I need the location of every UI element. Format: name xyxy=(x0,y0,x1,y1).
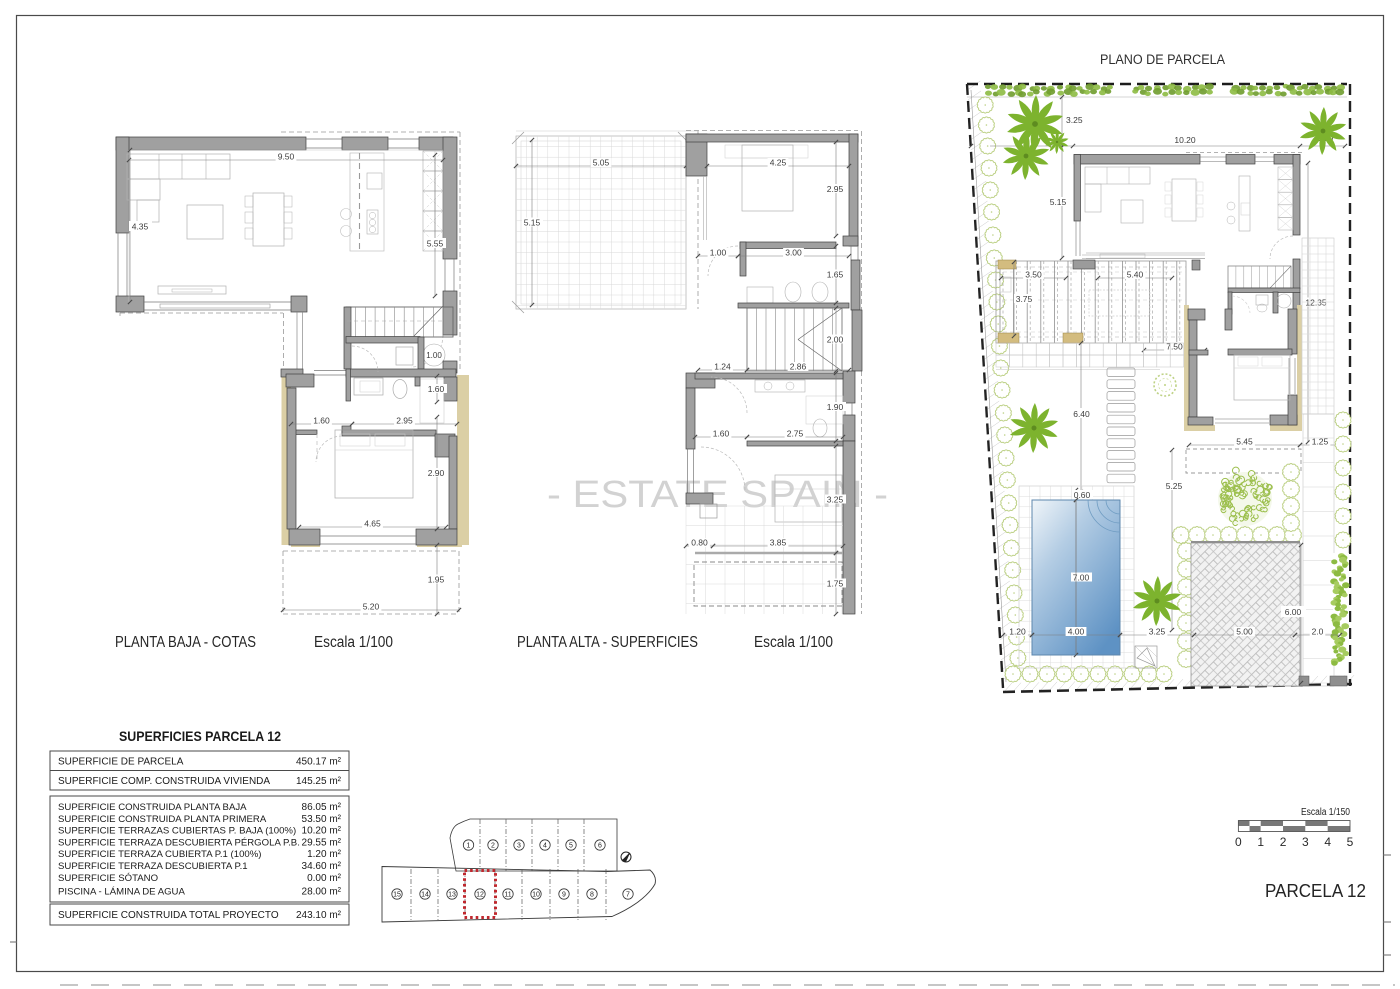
svg-text:PISCINA - LÁMINA DE AGUA: PISCINA - LÁMINA DE AGUA xyxy=(58,887,185,898)
svg-text:2.0: 2.0 xyxy=(1312,627,1324,637)
svg-text:3.00: 3.00 xyxy=(785,248,802,258)
svg-text:10.20 m²: 10.20 m² xyxy=(302,826,342,837)
svg-text:PARCELA 12: PARCELA 12 xyxy=(1265,880,1366,901)
svg-text:6.00: 6.00 xyxy=(1285,607,1302,617)
svg-text:SUPERFICIE TERRAZAS CUBIERTAS: SUPERFICIE TERRAZAS CUBIERTAS P. BAJA (1… xyxy=(58,826,296,837)
svg-text:34.60 m²: 34.60 m² xyxy=(302,861,342,872)
svg-text:5: 5 xyxy=(1347,835,1354,849)
svg-text:2.75: 2.75 xyxy=(787,429,804,439)
svg-text:5.05: 5.05 xyxy=(593,158,610,168)
svg-text:1.60: 1.60 xyxy=(713,429,730,439)
svg-text:3.75: 3.75 xyxy=(1016,294,1033,304)
svg-text:4: 4 xyxy=(1324,835,1331,849)
svg-text:2.95: 2.95 xyxy=(827,184,844,194)
svg-text:14: 14 xyxy=(421,892,429,899)
svg-text:1.65: 1.65 xyxy=(827,270,844,280)
svg-text:3.25: 3.25 xyxy=(827,495,844,505)
svg-text:1.24: 1.24 xyxy=(714,362,731,372)
svg-text:53.50 m²: 53.50 m² xyxy=(302,814,342,825)
svg-text:1.20: 1.20 xyxy=(1009,627,1026,637)
svg-text:0: 0 xyxy=(1235,835,1242,849)
svg-text:3.50: 3.50 xyxy=(1025,270,1042,280)
svg-text:15: 15 xyxy=(393,892,401,899)
svg-text:SUPERFICIE TERRAZA CUBIERTA P.: SUPERFICIE TERRAZA CUBIERTA P.1 (100%) xyxy=(58,849,262,860)
svg-text:4.25: 4.25 xyxy=(770,158,787,168)
svg-text:9.50: 9.50 xyxy=(278,152,295,162)
svg-text:0.00 m²: 0.00 m² xyxy=(307,873,342,884)
svg-text:86.05 m²: 86.05 m² xyxy=(302,802,342,813)
svg-text:Escala 1/150: Escala 1/150 xyxy=(1301,807,1350,818)
svg-text:4.00: 4.00 xyxy=(1068,627,1085,637)
svg-text:SUPERFICIE COMP. CONSTRUIDA VI: SUPERFICIE COMP. CONSTRUIDA VIVIENDA xyxy=(58,776,270,787)
svg-text:Escala 1/100: Escala 1/100 xyxy=(754,634,833,651)
svg-text:4.65: 4.65 xyxy=(364,519,381,529)
svg-text:1.20 m²: 1.20 m² xyxy=(307,849,342,860)
svg-text:5.15: 5.15 xyxy=(524,218,541,228)
svg-text:10.20: 10.20 xyxy=(1174,135,1196,145)
svg-text:13: 13 xyxy=(448,892,456,899)
svg-text:4: 4 xyxy=(543,843,547,850)
svg-text:SUPERFICIE DE PARCELA: SUPERFICIE DE PARCELA xyxy=(58,757,184,768)
svg-text:Escala 1/100: Escala 1/100 xyxy=(314,634,393,651)
svg-text:29.55 m²: 29.55 m² xyxy=(302,837,342,848)
svg-text:5.15: 5.15 xyxy=(1050,197,1067,207)
svg-text:0.60: 0.60 xyxy=(1074,490,1091,500)
svg-text:10: 10 xyxy=(532,892,540,899)
svg-text:PLANTA ALTA - SUPERFICIES: PLANTA ALTA - SUPERFICIES xyxy=(517,634,698,651)
svg-text:SUPERFICIE CONSTRUIDA TOTAL PR: SUPERFICIE CONSTRUIDA TOTAL PROYECTO xyxy=(58,910,279,921)
svg-text:SUPERFICIE CONSTRUIDA PLANTA B: SUPERFICIE CONSTRUIDA PLANTA BAJA xyxy=(58,802,247,813)
svg-text:9: 9 xyxy=(562,892,566,899)
svg-text:3.25: 3.25 xyxy=(1066,115,1083,125)
svg-text:SUPERFICIES PARCELA 12: SUPERFICIES PARCELA 12 xyxy=(119,728,281,744)
svg-text:SUPERFICIE SÓTANO: SUPERFICIE SÓTANO xyxy=(58,873,158,884)
svg-text:PLANTA BAJA - COTAS: PLANTA BAJA - COTAS xyxy=(115,634,256,651)
svg-text:2: 2 xyxy=(491,843,495,850)
svg-text:3: 3 xyxy=(517,843,521,850)
svg-text:1: 1 xyxy=(1257,835,1264,849)
svg-text:2.95: 2.95 xyxy=(396,416,413,426)
svg-text:5: 5 xyxy=(569,843,573,850)
svg-text:PLANO DE PARCELA: PLANO DE PARCELA xyxy=(1100,52,1225,67)
svg-text:28.00 m²: 28.00 m² xyxy=(302,887,342,898)
svg-text:243.10 m²: 243.10 m² xyxy=(296,910,342,921)
svg-text:11: 11 xyxy=(504,892,511,899)
svg-text:6: 6 xyxy=(598,843,602,850)
svg-text:1.00: 1.00 xyxy=(426,351,442,360)
svg-text:5.45: 5.45 xyxy=(1236,437,1253,447)
svg-text:12: 12 xyxy=(476,892,484,899)
svg-text:450.17 m²: 450.17 m² xyxy=(296,757,342,768)
svg-text:2.00: 2.00 xyxy=(827,335,844,345)
svg-text:SUPERFICIE CONSTRUIDA PLANTA P: SUPERFICIE CONSTRUIDA PLANTA PRIMERA xyxy=(58,814,267,825)
svg-text:7: 7 xyxy=(626,892,630,899)
svg-text:1.60: 1.60 xyxy=(313,416,330,426)
svg-text:3.25: 3.25 xyxy=(1149,627,1166,637)
svg-text:2: 2 xyxy=(1280,835,1287,849)
svg-text:3.85: 3.85 xyxy=(770,538,787,548)
svg-text:6.40: 6.40 xyxy=(1073,409,1090,419)
svg-text:5.40: 5.40 xyxy=(1127,270,1144,280)
svg-text:0.80: 0.80 xyxy=(691,538,708,548)
svg-text:8: 8 xyxy=(590,892,594,899)
svg-text:SUPERFICIE TERRAZA DESCUBIERTA: SUPERFICIE TERRAZA DESCUBIERTA PÉRGOLA P… xyxy=(58,837,300,848)
svg-text:1.00: 1.00 xyxy=(710,248,727,258)
svg-text:1.90: 1.90 xyxy=(827,402,844,412)
svg-text:4.35: 4.35 xyxy=(132,222,149,232)
svg-text:7.00: 7.00 xyxy=(1073,573,1090,583)
svg-text:1.95: 1.95 xyxy=(428,575,445,585)
svg-text:5.55: 5.55 xyxy=(427,239,444,249)
svg-text:SUPERFICIE TERRAZA DESCUBIERTA: SUPERFICIE TERRAZA DESCUBIERTA P.1 xyxy=(58,861,248,872)
svg-text:2.90: 2.90 xyxy=(428,468,445,478)
svg-text:1.75: 1.75 xyxy=(827,579,844,589)
svg-text:3: 3 xyxy=(1302,835,1309,849)
svg-text:2.86: 2.86 xyxy=(790,362,807,372)
svg-text:5.25: 5.25 xyxy=(1166,481,1183,491)
svg-text:145.25 m²: 145.25 m² xyxy=(296,776,342,787)
svg-text:12.35: 12.35 xyxy=(1305,298,1327,308)
svg-text:1: 1 xyxy=(467,843,471,850)
svg-text:5.20: 5.20 xyxy=(363,602,380,612)
svg-text:5.00: 5.00 xyxy=(1236,627,1253,637)
svg-text:1.60: 1.60 xyxy=(428,384,445,394)
